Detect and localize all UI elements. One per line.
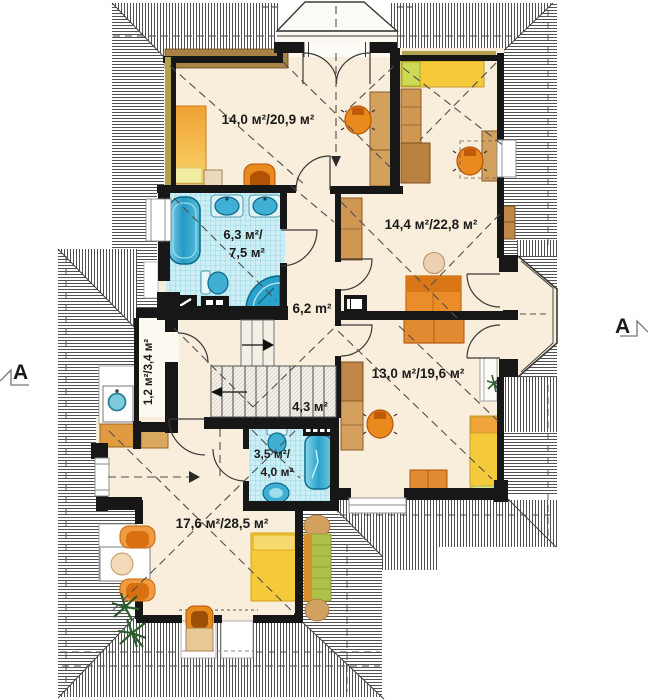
svg-text:6,2 m²: 6,2 m² <box>292 301 332 316</box>
svg-text:17,6 м²/28,5 м²: 17,6 м²/28,5 м² <box>176 516 269 531</box>
svg-text:14,0 м²/20,9 м²: 14,0 м²/20,9 м² <box>222 112 315 127</box>
svg-text:4,0 м²: 4,0 м² <box>261 465 294 479</box>
svg-text:A: A <box>13 361 28 384</box>
svg-text:3,5 м²/: 3,5 м²/ <box>254 447 291 461</box>
svg-text:14,4 м²/22,8 м²: 14,4 м²/22,8 м² <box>385 217 478 232</box>
svg-text:7,5 м²: 7,5 м² <box>229 245 265 260</box>
svg-text:4,3 м²: 4,3 м² <box>292 399 328 414</box>
svg-text:1,2 м²/3,4 м²: 1,2 м²/3,4 м² <box>143 339 155 405</box>
svg-text:13,0 м²/19,6 м²: 13,0 м²/19,6 м² <box>372 366 465 381</box>
svg-text:A: A <box>615 315 630 338</box>
svg-text:6,3 м²/: 6,3 м²/ <box>223 227 263 242</box>
